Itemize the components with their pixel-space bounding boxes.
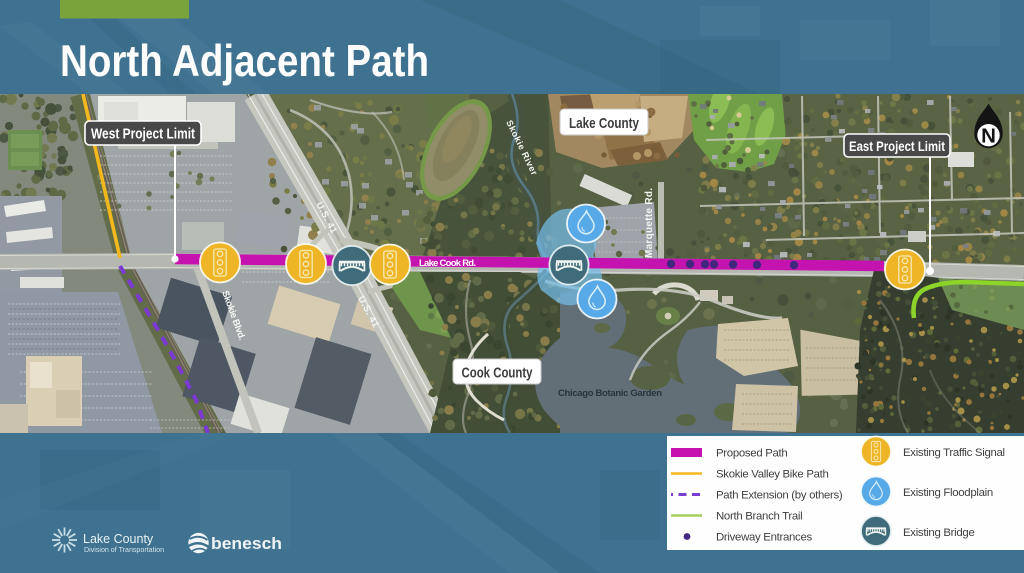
svg-text:East Project Limit: East Project Limit xyxy=(849,138,945,154)
svg-text:N: N xyxy=(981,125,996,148)
svg-text:benesch: benesch xyxy=(211,534,282,553)
svg-text:Skokie Valley Bike Path: Skokie Valley Bike Path xyxy=(716,469,829,481)
svg-text:Existing Bridge: Existing Bridge xyxy=(903,527,974,539)
svg-text:Cook County: Cook County xyxy=(462,366,533,382)
svg-text:Lake Cook Rd.: Lake Cook Rd. xyxy=(419,258,476,269)
svg-text:Chicago Botanic Garden: Chicago Botanic Garden xyxy=(558,388,662,399)
svg-text:Lake County: Lake County xyxy=(83,532,154,546)
svg-text:Lake County: Lake County xyxy=(569,115,640,132)
svg-text:Division of Transportation: Division of Transportation xyxy=(84,546,164,554)
svg-text:North Branch Trail: North Branch Trail xyxy=(716,511,802,523)
svg-text:Existing Floodplain: Existing Floodplain xyxy=(903,487,993,499)
svg-text:North Adjacent Path: North Adjacent Path xyxy=(60,37,429,86)
svg-text:Existing Traffic Signal: Existing Traffic Signal xyxy=(903,447,1005,459)
svg-text:Marquette Rd.: Marquette Rd. xyxy=(644,188,655,258)
svg-text:Driveway Entrances: Driveway Entrances xyxy=(716,532,812,544)
svg-text:Path Extension (by others): Path Extension (by others) xyxy=(716,490,843,502)
svg-text:Proposed Path: Proposed Path xyxy=(716,448,787,460)
svg-text:West Project Limit: West Project Limit xyxy=(91,127,195,143)
